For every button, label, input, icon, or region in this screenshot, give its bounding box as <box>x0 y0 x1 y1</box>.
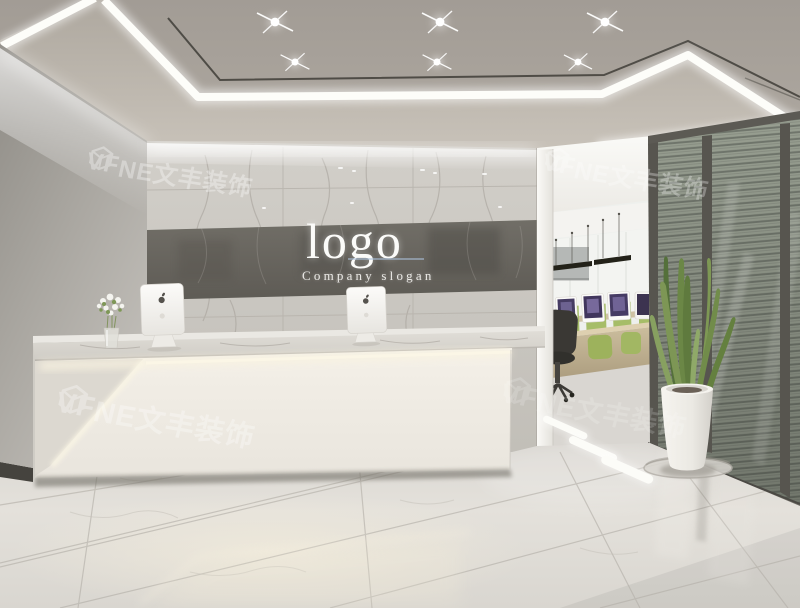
scene-canvas <box>0 0 800 608</box>
slogan-text: Company slogan <box>302 268 435 284</box>
office-workstations <box>541 291 652 464</box>
reception-lobby-render: logo Company slogan VF NE文丰装饰 VF NE文丰装饰 … <box>0 0 800 608</box>
logo-underline <box>348 258 424 260</box>
